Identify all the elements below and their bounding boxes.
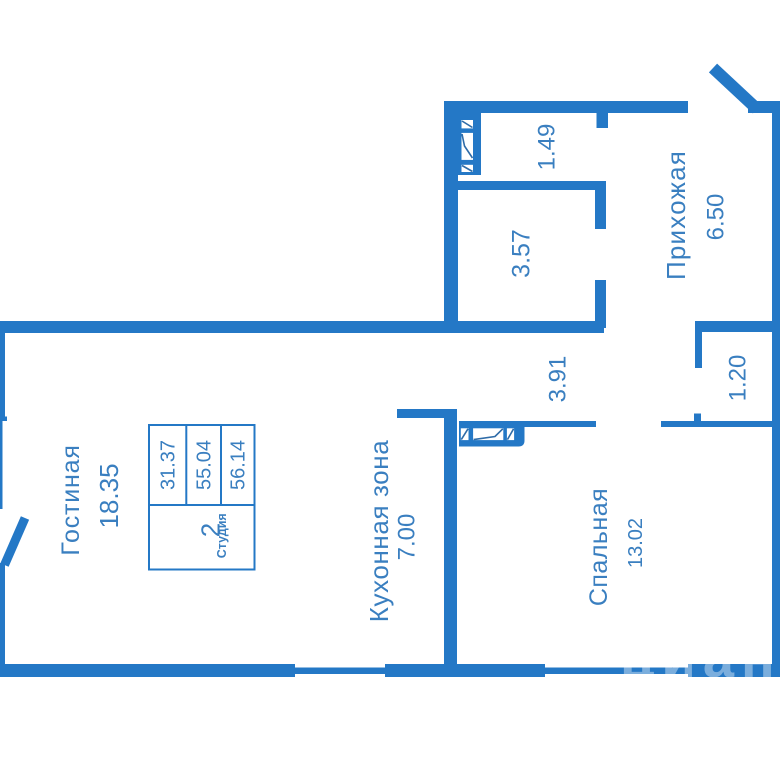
svg-text:Кухонная зона: Кухонная зона	[364, 440, 394, 623]
svg-text:Прихожая: Прихожая	[661, 150, 691, 280]
svg-text:3.91: 3.91	[544, 356, 571, 403]
svg-text:3.57: 3.57	[507, 229, 535, 278]
svg-text:55.04: 55.04	[194, 440, 216, 490]
svg-text:6.50: 6.50	[702, 194, 729, 241]
svg-text:Спальная: Спальная	[585, 488, 613, 606]
svg-text:7.00: 7.00	[393, 514, 420, 561]
svg-text:18.35: 18.35	[94, 463, 124, 528]
svg-text:Студия: Студия	[215, 513, 229, 558]
svg-text:13.02: 13.02	[625, 518, 647, 568]
svg-text:Гостиная: Гостиная	[57, 444, 85, 555]
svg-text:31.37: 31.37	[158, 440, 180, 490]
svg-text:56.14: 56.14	[228, 440, 250, 490]
svg-text:1.49: 1.49	[533, 124, 560, 171]
svg-text:циан: циан	[620, 626, 780, 689]
svg-text:1.20: 1.20	[724, 355, 751, 402]
